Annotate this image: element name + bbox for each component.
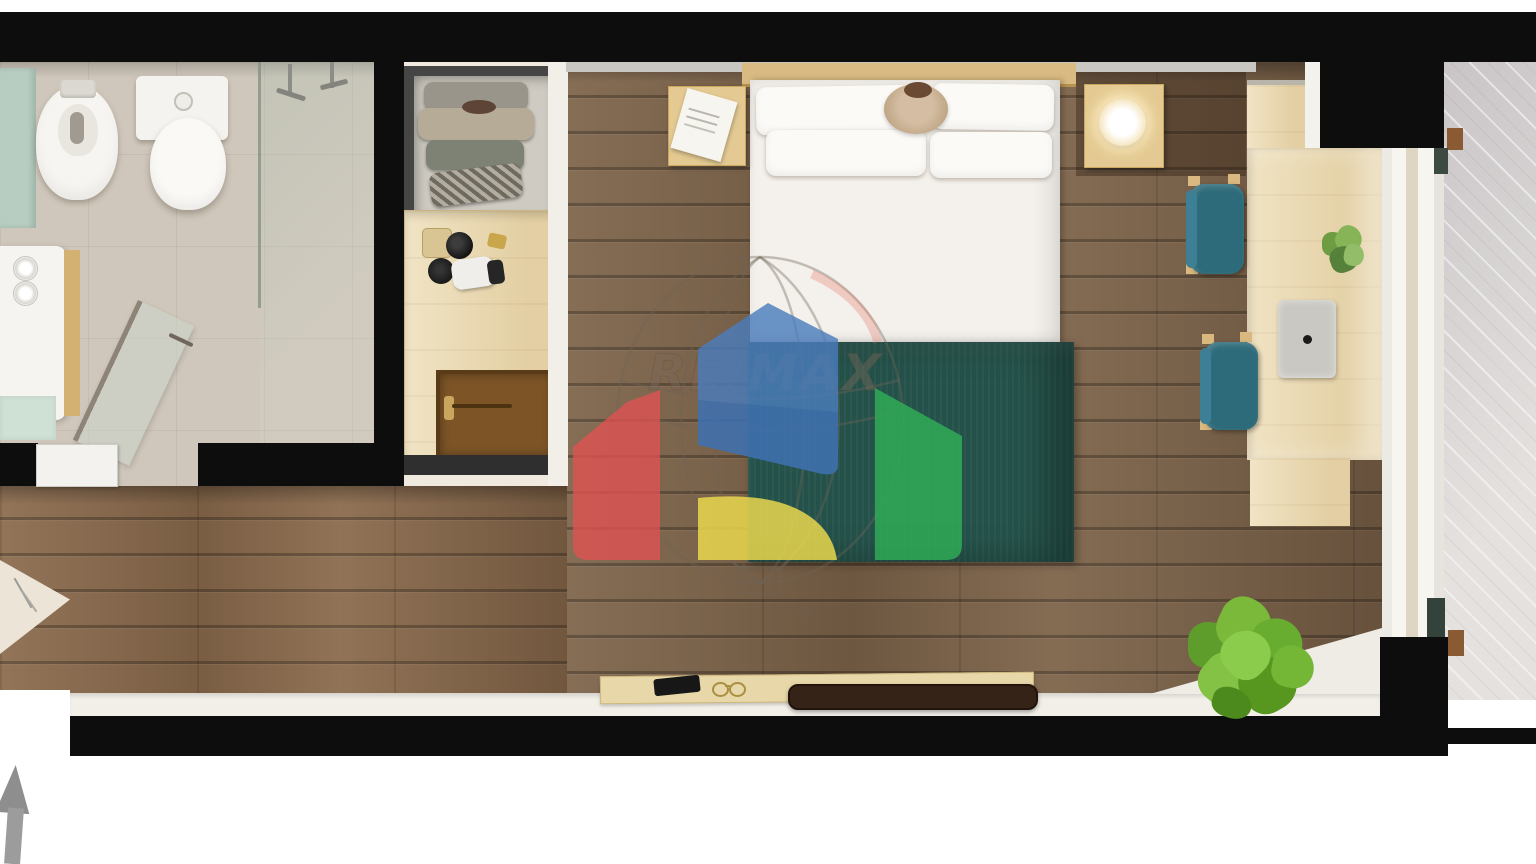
- door-connector-icon: [1434, 148, 1448, 174]
- bottom-right-wall-block: [1380, 637, 1448, 757]
- chair-leg-icon: [1240, 332, 1252, 342]
- chair-seat: [1190, 184, 1244, 274]
- desk-lower-return: [1250, 458, 1350, 526]
- registered-mark: ®: [797, 603, 813, 622]
- pillow: [766, 130, 926, 176]
- floorplan-canvas: RE/MAX ®: [0, 0, 1536, 864]
- bidet-fixture-icon: [60, 80, 96, 98]
- mat-handle-bar-icon: [452, 404, 512, 408]
- toilet-bowl: [150, 118, 226, 210]
- laptop-camera-dot-icon: [1303, 335, 1312, 344]
- pillow: [930, 132, 1052, 178]
- bottom-right-wall-strip: [1448, 728, 1536, 744]
- eyeglasses-bridge-icon: [725, 685, 730, 687]
- kettle-icon: [446, 232, 473, 259]
- top-wall: [0, 12, 1536, 62]
- chair-backrest: [1200, 348, 1211, 424]
- media-bar: [788, 684, 1038, 710]
- closet-shadow-strip: [404, 455, 556, 475]
- luggage-mat: [436, 370, 556, 460]
- bidet-drain-icon: [70, 112, 84, 144]
- bathroom-lower-wall-right: [198, 443, 376, 486]
- toilet-flush-button-icon: [174, 92, 193, 111]
- desk-upper: [1247, 80, 1305, 155]
- exterior-gap: [1448, 700, 1536, 728]
- bedside-lamp: [1099, 99, 1146, 146]
- vanity-side-panel: [64, 250, 80, 416]
- eyeglasses-icon: [729, 682, 746, 697]
- bathroom-door-panel: [36, 444, 118, 487]
- cup-icon: [428, 258, 454, 284]
- bath-mat: [0, 396, 56, 440]
- towel-roll-icon: [13, 256, 38, 281]
- chair-seat: [1204, 342, 1258, 430]
- balcony-floor: [1444, 62, 1536, 700]
- north-arrow-head-icon: [0, 764, 33, 814]
- sliding-door-frame: [1382, 148, 1444, 640]
- hall-floor: [0, 484, 567, 717]
- remax-watermark: RE/MAX ®: [560, 240, 980, 640]
- chair-leg-icon: [1228, 174, 1240, 184]
- bathroom-closet-divider-wall: [374, 62, 404, 486]
- mat-handle-icon: [444, 396, 454, 420]
- door-connector-icon: [1447, 128, 1463, 150]
- upper-right-wall-block: [1320, 62, 1450, 148]
- towel-roll-icon: [13, 281, 38, 306]
- exterior-bottom: [0, 756, 1536, 864]
- door-connector-icon: [1448, 630, 1464, 656]
- shower-glass-partition: [258, 62, 261, 308]
- bathroom-mint-wall: [0, 68, 36, 228]
- bottom-wall: [68, 716, 1448, 756]
- chair-backrest: [1186, 190, 1197, 268]
- towel-decor-accent: [904, 82, 932, 98]
- bowl-on-shelf: [462, 100, 496, 114]
- pillow: [932, 83, 1055, 131]
- coffee-machine-cap-icon: [486, 259, 505, 285]
- exterior-bottom-left: [0, 690, 70, 756]
- remax-house-shapes-icon: [573, 303, 962, 560]
- bathroom-lower-wall-left: [0, 443, 38, 486]
- wall-edge-strip: [1305, 62, 1321, 150]
